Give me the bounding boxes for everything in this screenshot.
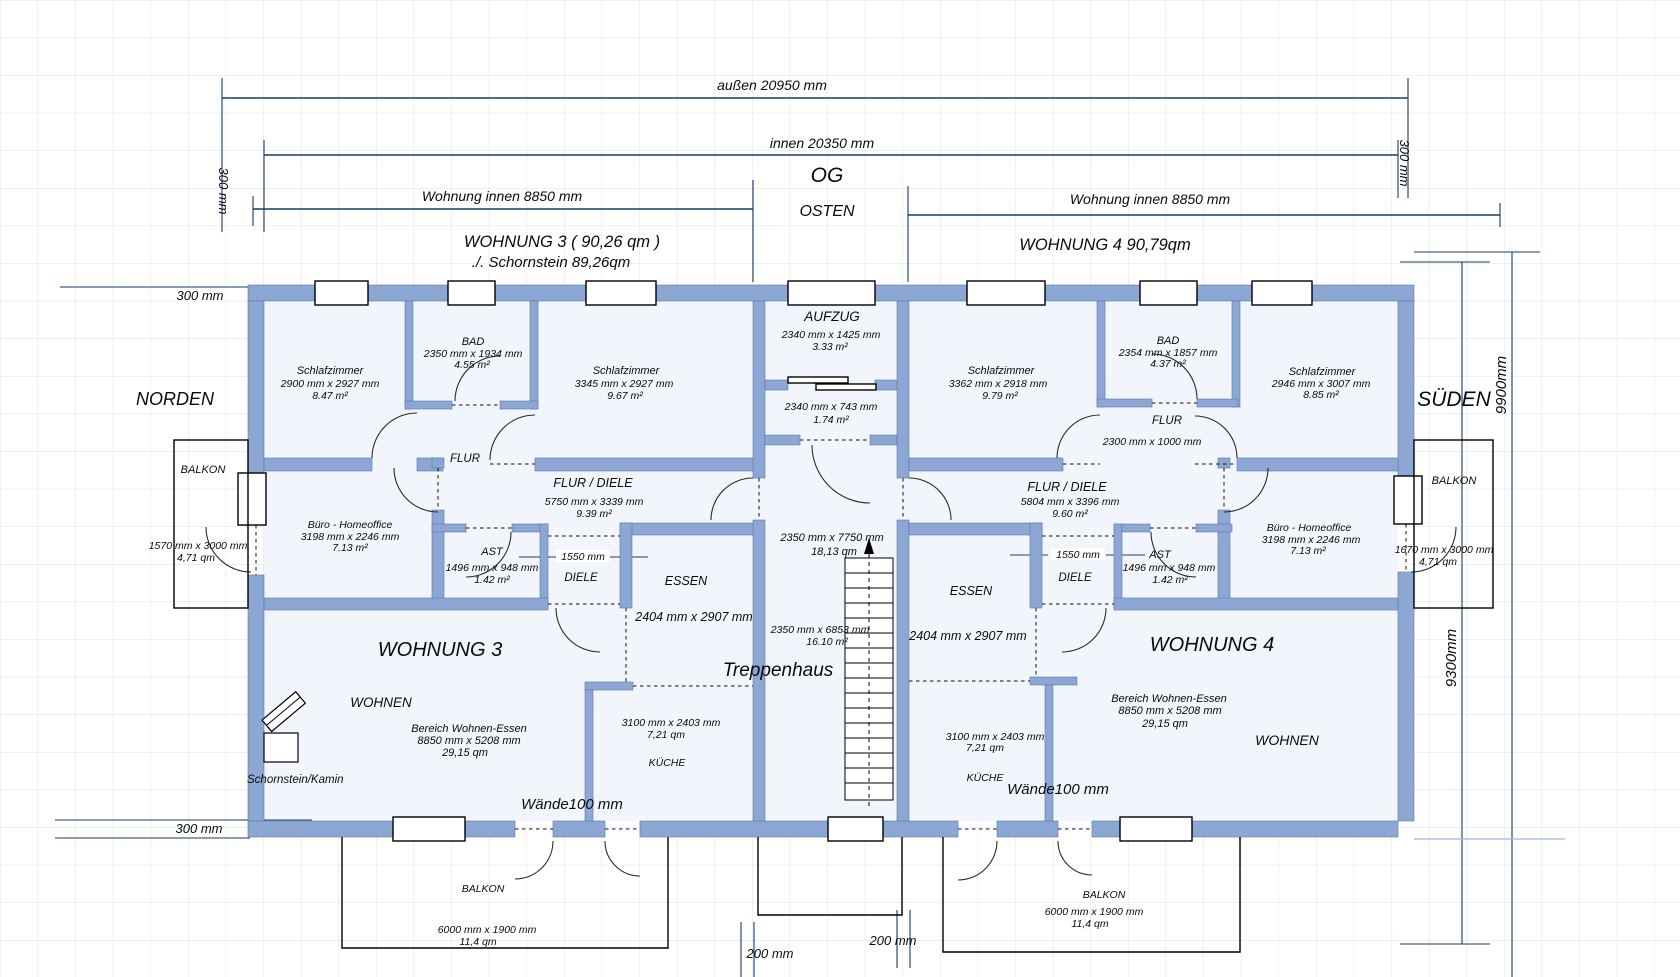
- apt3-office-name: Büro - Homeoffice: [308, 519, 393, 531]
- apt3-bedroom1-name: Schlafzimmer: [297, 365, 365, 377]
- apt3-kueche-name: KÜCHE: [649, 757, 687, 769]
- window-right: [1394, 476, 1422, 524]
- apt4-bereich-name: Bereich Wohnen-Essen: [1111, 693, 1227, 705]
- apt4-wohnen: WOHNEN: [1255, 732, 1320, 748]
- apt4-name: WOHNUNG 4: [1150, 634, 1274, 656]
- apt4-bedroom1-area: 9.79 m²: [982, 390, 1018, 402]
- balcony-bl-area: 11,4 qm: [459, 936, 496, 948]
- dim-300-left: 300 mm: [216, 168, 231, 215]
- window-bottom-center: [828, 817, 883, 841]
- dim-300-bottomleft: 300 mm: [176, 821, 223, 836]
- elevator-area: 3.33 m²: [812, 341, 848, 353]
- floorplan-drawing: außen 20950 mm innen 20350 mm OG OSTEN W…: [0, 0, 1680, 977]
- balcony-bl-name: BALKON: [462, 883, 505, 895]
- dim-apt3-inner: Wohnung innen 8850 mm: [422, 188, 583, 204]
- elevator-size: 2340 mm x 1425 mm: [781, 329, 881, 341]
- window-top-3: [586, 281, 656, 305]
- window-bottom-1: [393, 817, 465, 841]
- apt3-chimney-label: Schornstein/Kamin: [247, 774, 344, 786]
- apt3-wohnen: WOHNEN: [350, 695, 412, 710]
- window-top-6: [1252, 281, 1312, 305]
- dim-200-right: 200 mm: [869, 933, 917, 948]
- apt3-bereich-name: Bereich Wohnen-Essen: [411, 723, 527, 735]
- dim-9300: 9300mm: [1443, 629, 1460, 687]
- dim-9900: 9900mm: [1493, 356, 1510, 414]
- shaft-size: 2340 mm x 743 mm: [784, 401, 878, 413]
- apt3-bedroom1-area: 8.47 m²: [312, 390, 348, 402]
- apt3-ast-size: 1496 mm x 948 mm: [446, 562, 539, 574]
- compass-east: OSTEN: [799, 203, 855, 220]
- apt4-ast-name: AST: [1148, 549, 1172, 561]
- apt4-ast-area: 1.42 m²: [1152, 574, 1188, 586]
- apt3-bedroom2-name: Schlafzimmer: [593, 365, 661, 377]
- floor-label: OG: [811, 164, 844, 187]
- dim-300-topleft: 300 mm: [177, 288, 224, 303]
- balcony-br-area: 11,4 qm: [1071, 918, 1108, 930]
- balcony-left-size: 1570 mm x 3000 mm: [149, 540, 248, 552]
- compass-south: SÜDEN: [1417, 388, 1491, 411]
- apt3-essen-size: 2404 mm x 2907 mm: [634, 610, 752, 624]
- apt3-bedroom2-size: 3345 mm x 2927 mm: [575, 378, 674, 390]
- apt3-bereich-area: 29,15 qm: [441, 747, 488, 759]
- dim-apt4-inner: Wohnung innen 8850 mm: [1070, 191, 1231, 207]
- balcony-left-area: 4,71 qm: [177, 552, 215, 564]
- elevator-door-leaf-1: [788, 377, 848, 383]
- elevator-door-leaf-2: [816, 384, 876, 390]
- apt4-bedroom1-size: 3362 mm x 2918 mm: [949, 378, 1048, 390]
- apt4-bereich-size: 8850 mm x 5208 mm: [1118, 705, 1221, 717]
- apt4-bath-name: BAD: [1157, 335, 1180, 347]
- apt3-ast-area: 1.42 m²: [474, 574, 510, 586]
- compass-north: NORDEN: [136, 389, 215, 409]
- window-top-4: [967, 281, 1045, 305]
- window-bottom-2: [1120, 817, 1192, 841]
- balcony-right-area: 4,71 qm: [1419, 556, 1457, 568]
- apt3-ast-name: AST: [480, 546, 504, 558]
- window-left: [238, 473, 266, 525]
- stairwell-size-inner: 2350 mm x 6853 mm: [770, 624, 870, 636]
- apt4-flur-size: 2300 mm x 1000 mm: [1102, 436, 1202, 448]
- stairwell-size-outer: 2350 mm x 7750 mm: [779, 532, 883, 544]
- apt4-essen-size: 2404 mm x 2907 mm: [908, 629, 1026, 643]
- apt4-office-name: Büro - Homeoffice: [1267, 522, 1352, 534]
- dim-inner-width: innen 20350 mm: [770, 135, 875, 151]
- balcony-right-size: 1670 mm x 3000 mm: [1395, 544, 1494, 556]
- stairwell-area-outer: 18,13 qm: [811, 546, 857, 558]
- apt3-name: WOHNUNG 3: [378, 639, 502, 661]
- apt3-flurdiele-name: FLUR / DIELE: [553, 476, 633, 490]
- apt3-flur: FLUR: [450, 453, 480, 465]
- apt4-bedroom2-area: 8.85 m²: [1303, 389, 1339, 401]
- apt4-bedroom2-name: Schlafzimmer: [1289, 366, 1357, 378]
- stairwell-area-inner: 16.10 m²: [806, 636, 848, 648]
- balcony-br-size: 6000 mm x 1900 mm: [1045, 906, 1144, 918]
- balcony-bl-size: 6000 mm x 1900 mm: [438, 924, 537, 936]
- apt4-bedroom1-name: Schlafzimmer: [968, 365, 1036, 377]
- window-top-2: [448, 281, 495, 305]
- apt3-diele: DIELE: [564, 572, 598, 584]
- apt3-subtitle: ./. Schornstein 89,26qm: [472, 254, 630, 271]
- apt3-flurdiele-size: 5750 mm x 3339 mm: [545, 496, 644, 508]
- apt4-flurdiele-area: 9.60 m²: [1052, 508, 1088, 520]
- apt4-flurdiele-name: FLUR / DIELE: [1027, 480, 1107, 494]
- apt3-diele-width: 1550 mm: [561, 551, 605, 563]
- balcony-left-name: BALKON: [181, 464, 226, 476]
- elevator-name: AUFZUG: [803, 309, 860, 324]
- apt3-flurdiele-area: 9.39 m²: [576, 508, 612, 520]
- balcony-right-name: BALKON: [1432, 475, 1477, 487]
- window-top-5: [1140, 281, 1197, 305]
- dim-outer-width: außen 20950 mm: [717, 77, 827, 93]
- apt3-office-area: 7.13 m²: [332, 542, 368, 554]
- balcony-br-name: BALKON: [1083, 889, 1126, 901]
- apt4-bath-area: 4.37 m²: [1150, 358, 1186, 370]
- apt4-walls-note: Wände100 mm: [1007, 781, 1109, 798]
- apt3-kueche-size: 3100 mm x 2403 mm: [622, 717, 721, 729]
- apt4-kueche-area: 7,21 qm: [966, 742, 1004, 754]
- apt3-bath-area: 4.55 m²: [454, 359, 490, 371]
- dim-300-right: 300 mm: [1397, 140, 1412, 187]
- apt4-essen-name: ESSEN: [950, 584, 993, 598]
- staircase: [845, 538, 893, 806]
- apt4-diele: DIELE: [1058, 572, 1092, 584]
- window-top-elevator: [788, 281, 875, 305]
- apt4-ast-size: 1496 mm x 948 mm: [1123, 562, 1216, 574]
- apt4-kueche-name: KÜCHE: [967, 772, 1005, 784]
- apt3-bedroom1-size: 2900 mm x 2927 mm: [280, 378, 380, 390]
- apt3-essen-name: ESSEN: [665, 574, 708, 588]
- apt4-diele-width: 1550 mm: [1056, 549, 1100, 561]
- floorplan-canvas[interactable]: außen 20950 mm innen 20350 mm OG OSTEN W…: [0, 0, 1680, 977]
- shaft-area: 1.74 m²: [813, 414, 849, 426]
- apt3-bereich-size: 8850 mm x 5208 mm: [417, 735, 520, 747]
- window-top-1: [315, 281, 368, 305]
- apt4-office-area: 7.13 m²: [1290, 545, 1326, 557]
- apt4-flurdiele-size: 5804 mm x 3396 mm: [1021, 496, 1120, 508]
- apt3-bath-name: BAD: [462, 336, 485, 348]
- apt4-title: WOHNUNG 4 90,79qm: [1019, 236, 1190, 254]
- apt3-walls-note: Wände100 mm: [521, 796, 623, 813]
- apt3-title: WOHNUNG 3 ( 90,26 qm ): [464, 233, 660, 251]
- stairwell-name: Treppenhaus: [723, 660, 834, 681]
- apt4-flur: FLUR: [1152, 415, 1182, 427]
- apt3-bedroom2-area: 9.67 m²: [607, 390, 643, 402]
- apt3-kueche-area: 7,21 qm: [647, 729, 685, 741]
- apt4-bereich-area: 29,15 qm: [1141, 718, 1188, 730]
- dim-200-left: 200 mm: [746, 946, 794, 961]
